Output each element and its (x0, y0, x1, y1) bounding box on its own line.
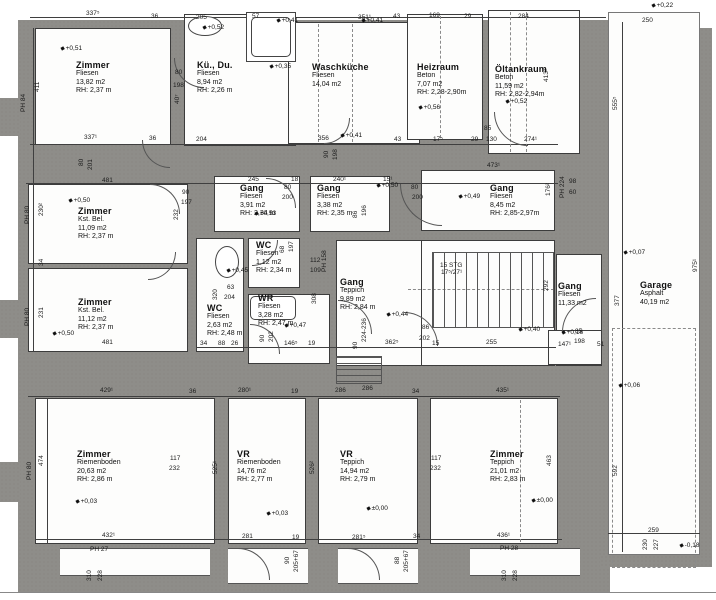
room-label-vr-1: VRRiemenboden14,76 m2RH: 2,77 m (237, 449, 281, 485)
room-name: Kü., Du. (197, 60, 233, 70)
room-detail: 11,33 m2 (558, 300, 587, 309)
dimension-label: 196 (361, 205, 368, 216)
dimension-label: 68 (279, 246, 286, 253)
level-flag-icon: ◆ (385, 312, 391, 320)
dimension-label: 292 (543, 280, 550, 291)
dimension-label: 200 (282, 194, 293, 201)
dimension-label: 43 (394, 136, 401, 143)
dimension-label: 85 (484, 125, 491, 132)
room-detail: 40,19 m2 (640, 299, 672, 308)
room-name: Gang (490, 183, 539, 193)
level-flag-icon: ◆ (339, 133, 345, 141)
room-name: Zimmer (77, 449, 121, 459)
room-detail: RH: 2,84 m (340, 304, 375, 313)
wall-stub-left-1 (0, 98, 20, 136)
room-detail: 3,28 m2 (258, 312, 293, 321)
room-name: WR (258, 293, 293, 303)
level-value: -0,18 (685, 542, 700, 549)
level-marker: ◆+0,03 (75, 498, 97, 506)
dimension-label: 240¹ (333, 176, 346, 183)
dimension-label: 975¹ (692, 259, 699, 272)
room-name: WC (207, 303, 242, 313)
level-marker: ◆±0,00 (366, 505, 388, 513)
room-detail: Fliesen (197, 70, 233, 79)
room-detail: 7,07 m2 (417, 81, 466, 90)
room-detail: 14,94 m2 (340, 468, 375, 477)
room-label-oeltankraum: ÖltankraumBeton11,59 m2RH: 2,82-2,94m (495, 64, 547, 100)
room-detail: RH: 2,26 m (197, 87, 233, 96)
dimension-label: 274¹ (524, 136, 537, 143)
dimension-label: 130 (486, 136, 497, 143)
dimension-label: 204 (196, 136, 207, 143)
level-marker: ◆+0,56 (418, 104, 440, 112)
wall-stub-left-2 (0, 300, 20, 338)
dimension-label: 377 (614, 295, 621, 306)
level-marker: ◆+0,07 (623, 249, 645, 257)
dimension-label: PH 27 (90, 546, 108, 553)
level-value: +0,41 (346, 132, 362, 139)
room-name: Gang (558, 281, 587, 291)
room-detail: 14,76 m2 (237, 468, 281, 477)
level-marker: ◆+0,40 (518, 326, 540, 334)
room-detail: Fliesen (207, 313, 242, 322)
room-label-zimmer-w2: ZimmerKst. Bel.11,12 m2RH: 2,37 m (78, 297, 113, 333)
room-label-gang-ost: GangFliesen11,33 m2 (558, 281, 587, 308)
dimension-label: 117 (170, 455, 180, 462)
room-name: Zimmer (78, 297, 113, 307)
dimension-label: 117 (431, 455, 441, 462)
dimension-label: 281⁵ (352, 534, 366, 541)
level-marker: ◆±0,00 (531, 497, 553, 505)
dimension-label: 200 (412, 194, 423, 201)
level-flag-icon: ◆ (622, 250, 628, 258)
room-name: Gang (340, 277, 375, 287)
dimension-label: 176² (545, 183, 552, 196)
dimension-label: 63 (227, 284, 234, 291)
room-label-wc-klein: WCFliesen1,12 m2RH: 2,34 m (256, 240, 291, 276)
room-detail: 1,12 m2 (256, 259, 291, 268)
level-flag-icon: ◆ (275, 18, 281, 26)
dimension-label: 356 (318, 135, 329, 142)
level-value: +0,44 (392, 311, 408, 318)
level-marker: ◆+0,16 (561, 329, 583, 337)
room-detail: 8,94 m2 (197, 79, 233, 88)
level-value: +0,45 (232, 267, 248, 274)
dimension-label: 362⁵ (385, 339, 399, 346)
level-flag-icon: ◆ (74, 499, 80, 507)
room-name: Zimmer (490, 449, 525, 459)
dimension-label: PH 80 (24, 308, 31, 326)
level-marker: ◆+0,51 (60, 45, 82, 53)
dimension-label: 205+67 (403, 550, 410, 572)
dimension-label: 201 (87, 159, 94, 170)
dimension-label: 205+67 (293, 550, 300, 572)
level-flag-icon: ◆ (283, 323, 289, 331)
dimension-label: 198 (574, 338, 585, 345)
level-flag-icon: ◆ (51, 331, 57, 339)
room-detail: RH: 2,77 m (237, 476, 281, 485)
room-detail: Fliesen (256, 250, 291, 259)
dimension-label: 19 (291, 388, 298, 395)
level-flag-icon: ◆ (59, 46, 65, 54)
level-value: +0,49 (464, 193, 480, 200)
room-detail: Beton (495, 74, 547, 83)
dimension-label: 526² (309, 461, 316, 474)
dimension-label: 435¹ (496, 387, 509, 394)
room-label-gang-n: GangFliesen3,38 m2RH: 2,35 m (317, 183, 352, 219)
dim-line-left-low (47, 398, 48, 544)
level-flag-icon: ◆ (265, 511, 271, 519)
room-detail: Fliesen (240, 193, 275, 202)
dimension-label: 34 (38, 259, 45, 266)
level-flag-icon: ◆ (530, 498, 536, 506)
level-flag-icon: ◆ (360, 18, 366, 26)
room-detail: Fliesen (76, 70, 111, 79)
room-label-garage: GarageAsphalt40,19 m2 (640, 280, 672, 307)
dimension-label: 90 (182, 189, 189, 196)
level-value: +0,03 (81, 498, 97, 505)
level-marker: ◆+0,50 (376, 182, 398, 190)
dimension-label: 60 (569, 189, 576, 196)
dimension-label: 147¹ (558, 341, 571, 348)
dimension-label: PH 80 (26, 462, 33, 480)
dimension-label: 202 (268, 331, 275, 342)
level-value: +0,50 (382, 182, 398, 189)
wall-stub-left-3 (0, 462, 20, 502)
dimension-label: 29 (471, 136, 478, 143)
level-value: +0,41 (282, 17, 298, 24)
dimension-label: 29 (464, 13, 471, 20)
dimension-label: 255 (486, 339, 497, 346)
dimension-label: 202 (419, 335, 430, 342)
room-detail: 3,91 m2 (240, 202, 275, 211)
dimension-label: 286 (362, 385, 373, 392)
dimension-label: 413² (543, 69, 550, 82)
room-label-gang-ne: GangFliesen8,45 m2RH: 2,85-2,97m (490, 183, 539, 219)
room-name: Zimmer (76, 60, 111, 70)
room-label-zimmer-sw: ZimmerRiemenboden20,63 m2RH: 2,86 m (77, 449, 121, 485)
room-detail: Fliesen (258, 303, 293, 312)
dimension-label: 36 (151, 13, 158, 20)
level-value: +0,03 (272, 510, 288, 517)
level-value: +0,35 (275, 63, 291, 70)
room-name: VR (340, 449, 375, 459)
wall-garage-right (700, 28, 712, 563)
dimension-label: 337¹ (84, 134, 97, 141)
dimension-label: 230² (38, 203, 45, 216)
dimension-label: 88 (218, 340, 225, 347)
level-value: +0,16 (567, 329, 583, 336)
dimension-label: 197 (181, 199, 192, 206)
level-value: +0,06 (624, 382, 640, 389)
dimension-label: 197 (288, 241, 295, 252)
dimension-label: 86 (352, 211, 359, 218)
dimension-label: 231 (38, 307, 45, 318)
dimension-label: 592 (612, 465, 619, 476)
level-value: +0,50 (58, 330, 74, 337)
dimension-label: 224-236 (361, 318, 368, 342)
dimension-label: 26 (231, 340, 238, 347)
dimension-label: 15 (432, 340, 439, 347)
dimension-label: 198 (173, 82, 184, 89)
level-flag-icon: ◆ (617, 383, 623, 391)
dim-line-mid1 (30, 144, 558, 145)
dimension-label: 19 (292, 534, 299, 541)
level-value: ±0,00 (372, 505, 388, 512)
room-name: VR (237, 449, 281, 459)
dimension-label: 198 (332, 149, 339, 160)
level-value: +0,47 (290, 322, 306, 329)
room-detail: RH: 2,35 m (317, 210, 352, 219)
dimension-label: 34 (412, 388, 419, 395)
dimension-label: PH 28 (500, 545, 518, 552)
dimension-label: 310 (501, 570, 508, 581)
dimension-label: 308 (311, 293, 318, 304)
room-detail: Fliesen (558, 291, 587, 300)
room-detail: Fliesen (490, 193, 539, 202)
level-marker: ◆+0,35 (269, 63, 291, 71)
level-marker: ◆+0,52 (505, 98, 527, 106)
dimension-label: PH 158 (321, 250, 328, 272)
room-detail: 21,01 m2 (490, 468, 525, 477)
dimension-label: 280¹ (238, 387, 251, 394)
room-detail: 11,09 m2 (78, 225, 113, 234)
dimension-label: 80 (284, 184, 291, 191)
level-value: +0,22 (657, 2, 673, 9)
level-marker: ◆+0,44 (386, 311, 408, 319)
room-detail: RH: 2,79 m (340, 476, 375, 485)
dimension-label: 320 (212, 289, 219, 300)
dimension-label: 146⁵ (284, 340, 298, 347)
dimension-label: 17⁵ (433, 136, 443, 143)
level-marker: ◆+0,41 (340, 132, 362, 140)
dimension-label: 80 (78, 159, 85, 166)
room-name: Garage (640, 280, 672, 290)
dimension-label: 245 (248, 176, 259, 183)
room-detail: 11,12 m2 (78, 316, 113, 325)
dimension-label: PH 84 (20, 94, 27, 112)
level-flag-icon: ◆ (678, 543, 684, 551)
dimension-label: 40⁷ (174, 94, 181, 104)
room-label-zimmer-se: ZimmerTeppich21,01 m2RH: 2,83 m (490, 449, 525, 485)
level-flag-icon: ◆ (201, 25, 207, 33)
room-detail: 14,04 m2 (312, 81, 369, 90)
room-label-gang-mitte: GangTeppich9,89 m2RH: 2,84 m (340, 277, 375, 313)
dimension-label: 474 (38, 455, 45, 466)
room-label-vr-2: VRTeppich14,94 m2RH: 2,79 m (340, 449, 375, 485)
dimension-label: 286 (335, 387, 346, 394)
dimension-label: 88 (394, 557, 401, 564)
dimension-label: 43 (393, 13, 400, 20)
level-value: +0,56 (424, 104, 440, 111)
dimension-label: 432¹ (102, 532, 115, 539)
dimension-label: 36 (149, 135, 156, 142)
dimension-label: 90 (259, 335, 266, 342)
level-flag-icon: ◆ (67, 198, 73, 206)
dimension-label: 481 (102, 339, 113, 346)
room-name: Öltankraum (495, 64, 547, 74)
level-flag-icon: ◆ (268, 64, 274, 72)
room-detail: Riemenboden (237, 459, 281, 468)
room-detail: Teppich (340, 459, 375, 468)
dimension-label: 34 (413, 533, 420, 540)
level-marker: ◆+0,41 (361, 17, 383, 25)
level-flag-icon: ◆ (504, 99, 510, 107)
level-flag-icon: ◆ (457, 194, 463, 202)
level-marker: ◆+0,50 (52, 330, 74, 338)
room-detail: Teppich (340, 287, 375, 296)
room-name: Zimmer (78, 206, 113, 216)
level-value: +0,52 (208, 24, 224, 31)
level-marker: ◆+0,22 (651, 2, 673, 10)
dim-line-left (33, 28, 34, 352)
level-flag-icon: ◆ (560, 330, 566, 338)
room-detail: 8,45 m2 (490, 202, 539, 211)
dimension-label: 15 STG (440, 262, 462, 269)
room-detail: RH: 2,37 m (78, 324, 113, 333)
entrance-recess-right (470, 548, 580, 576)
dimension-label: 259 (648, 527, 659, 534)
room-detail: 3,38 m2 (317, 202, 352, 211)
dimension-label: 90 (352, 342, 359, 349)
dimension-label: 86 (422, 324, 429, 331)
room-detail: Riemenboden (77, 459, 121, 468)
room-name: Heizraum (417, 62, 466, 72)
level-value: +0,52 (511, 98, 527, 105)
dimension-label: 411 (34, 82, 41, 92)
dimension-label: 228 (97, 570, 104, 581)
level-value: +0,50 (74, 197, 90, 204)
dimension-label: 90 (323, 151, 330, 158)
level-value: +0,53 (260, 210, 276, 217)
room-label-zimmer-w1: ZimmerKst. Bel.11,09 m2RH: 2,37 m (78, 206, 113, 242)
level-marker: ◆+0,49 (458, 193, 480, 201)
level-marker: ◆+0,53 (254, 210, 276, 218)
room-detail: 2,63 m2 (207, 322, 242, 331)
room-detail: 11,59 m2 (495, 83, 547, 92)
level-marker: ◆+0,03 (266, 510, 288, 518)
room-name: Gang (240, 183, 275, 193)
dimension-label: 310 (86, 570, 93, 581)
dimension-label: 337⁵ (86, 10, 100, 17)
room-detail: RH: 2,48 m (207, 330, 242, 339)
room-detail: RH: 2,28-2,90m (417, 89, 466, 98)
dimension-label: 481 (102, 177, 113, 184)
dimension-label: 525¹ (212, 461, 219, 474)
room-label-waschkueche: WaschkücheFliesen14,04 m2 (312, 62, 369, 89)
dimension-label: 109 (310, 267, 321, 274)
level-marker: ◆-0,18 (679, 542, 699, 550)
dimension-label: 51 (597, 341, 604, 348)
room-label-zimmer-nw: ZimmerFliesen13,82 m2RH: 2,37 m (76, 60, 111, 96)
dimension-label: PH 224 (559, 176, 566, 198)
dimension-label: 429¹ (100, 387, 113, 394)
dimension-label: 34 (200, 340, 207, 347)
level-value: +0,51 (66, 45, 82, 52)
entrance-recess-left (60, 548, 210, 576)
room-detail: Teppich (490, 459, 525, 468)
level-flag-icon: ◆ (225, 268, 231, 276)
level-value: +0,40 (524, 326, 540, 333)
room-detail: 13,82 m2 (76, 79, 111, 88)
room-name: Gang (317, 183, 352, 193)
dimension-label: 463 (546, 455, 553, 466)
level-flag-icon: ◆ (375, 183, 381, 191)
dimension-label: 227 (653, 539, 660, 550)
dimension-label: 90 (284, 557, 291, 564)
dimension-label: 57 (252, 13, 259, 20)
room-detail: RH: 2,37 m (78, 233, 113, 242)
room-name: Waschküche (312, 62, 369, 72)
level-flag-icon: ◆ (253, 211, 259, 219)
level-value: +0,41 (367, 17, 383, 24)
level-flag-icon: ◆ (365, 506, 371, 514)
stairs-small (336, 356, 382, 384)
room-label-heizraum: HeizraumBeton7,07 m2RH: 2,28-2,90m (417, 62, 466, 98)
room-detail: Fliesen (317, 193, 352, 202)
level-flag-icon: ◆ (650, 3, 656, 11)
dimension-label: 232 (169, 465, 180, 472)
dimension-label: 473¹ (487, 162, 500, 169)
dimension-label: 555⁵ (612, 96, 619, 110)
room-label-kue-du: Kü., Du.Fliesen8,94 m2RH: 2,26 m (197, 60, 233, 96)
room-detail: 20,63 m2 (77, 468, 121, 477)
level-marker: ◆+0,06 (618, 382, 640, 390)
room-name: WC (256, 240, 291, 250)
dimension-label: 232 (430, 465, 441, 472)
room-detail: RH: 2,83 m (490, 476, 525, 485)
dimension-label: 205 (196, 14, 207, 21)
level-flag-icon: ◆ (417, 105, 423, 113)
level-marker: ◆+0,41 (276, 17, 298, 25)
level-marker: ◆+0,47 (284, 322, 306, 330)
level-marker: ◆+0,52 (202, 24, 224, 32)
room-detail: RH: 2,86 m (77, 476, 121, 485)
level-flag-icon: ◆ (517, 327, 523, 335)
level-value: +0,07 (629, 249, 645, 256)
dimension-label: 36 (189, 388, 196, 395)
floor-plan: ZimmerFliesen13,82 m2RH: 2,37 mKü., Du.F… (0, 0, 716, 600)
dimension-label: 80 (175, 69, 182, 76)
dimension-label: 18 (291, 176, 298, 183)
room-detail: 9,89 m2 (340, 296, 375, 305)
dimension-label: 228 (512, 570, 519, 581)
dimension-label: 232 (173, 209, 180, 220)
room-label-wc-links: WCFliesen2,63 m2RH: 2,48 m (207, 303, 242, 339)
room-detail: Fliesen (312, 72, 369, 81)
dimension-label: 19 (308, 340, 315, 347)
room-detail: Kst. Bel. (78, 307, 113, 316)
room-detail: RH: 2,34 m (256, 267, 291, 276)
dimension-label: PH 80 (24, 206, 31, 224)
level-marker: ◆+0,50 (68, 197, 90, 205)
dimension-label: 17⁵/27¹ (441, 269, 462, 276)
room-detail: Asphalt (640, 290, 672, 299)
dimension-label: 169 (429, 12, 440, 19)
room-detail: Kst. Bel. (78, 216, 113, 225)
dimension-label: 112 (310, 257, 320, 264)
dimension-label: 436¹ (497, 532, 510, 539)
dimension-label: 230 (642, 539, 649, 550)
dim-line-row3 (28, 396, 560, 397)
dimension-label: 204 (224, 294, 235, 301)
dimension-label: 250 (642, 17, 653, 24)
level-marker: ◆+0,45 (226, 267, 248, 275)
dimension-label: 80 (411, 184, 418, 191)
room-detail: RH: 2,37 m (76, 87, 111, 96)
page-edge-bottom (0, 592, 716, 593)
room-zimmer-sw (35, 398, 215, 544)
